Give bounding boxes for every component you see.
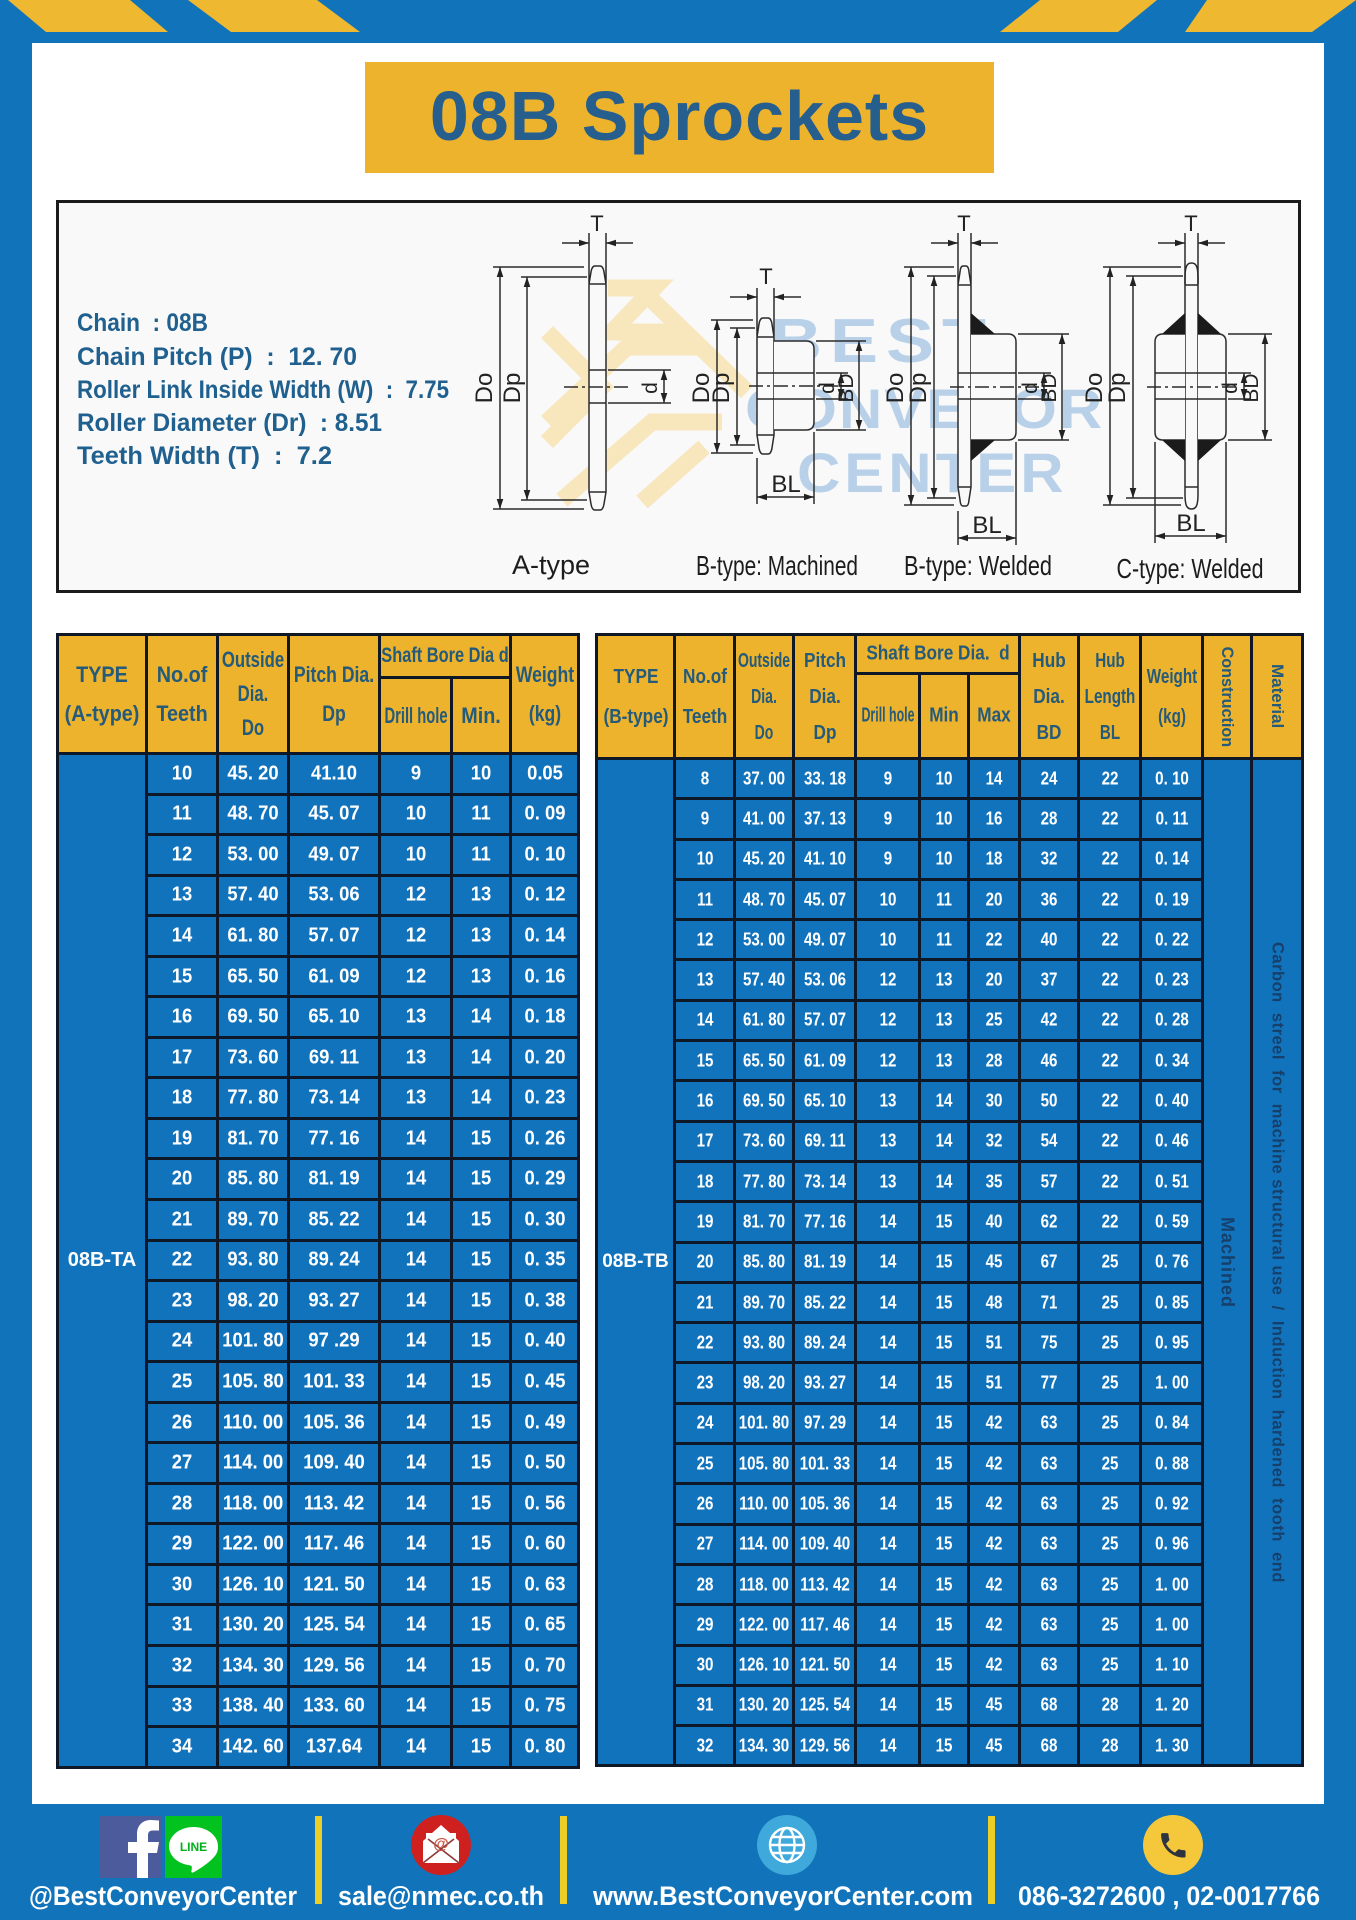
svg-text:Chain Pitch (P) : 12. 70: Chain Pitch (P) : 12. 70 — [77, 343, 357, 371]
svg-text:Chain : 08B: Chain : 08B — [77, 309, 208, 337]
svg-text:BD: BD — [835, 373, 858, 402]
svg-text:Dp: Dp — [499, 373, 526, 404]
svg-text:T: T — [590, 211, 603, 236]
svg-text:@BestConveyorCenter: @BestConveyorCenter — [29, 1881, 297, 1911]
svg-text:C-type: Welded: C-type: Welded — [1117, 553, 1264, 584]
svg-text:d: d — [1219, 382, 1242, 394]
svg-text:T: T — [957, 211, 970, 236]
svg-text:@: @ — [433, 1836, 449, 1853]
svg-text:Dp: Dp — [1104, 373, 1131, 404]
svg-text:BD: BD — [1038, 373, 1061, 402]
svg-text:086-3272600 , 02-0017766: 086-3272600 , 02-0017766 — [1018, 1881, 1320, 1911]
svg-text:Teeth Width (T) : 7.2: Teeth Width (T) : 7.2 — [77, 442, 332, 470]
svg-text:B-type: Machined: B-type: Machined — [696, 550, 858, 581]
svg-text:CENTER: CENTER — [797, 443, 1068, 504]
svg-text:BL: BL — [1176, 510, 1205, 537]
svg-text:Dp: Dp — [708, 373, 735, 404]
svg-text:T: T — [759, 264, 772, 289]
svg-text:LINE: LINE — [180, 1840, 207, 1854]
svg-text:Dp: Dp — [905, 373, 932, 404]
svg-text:T: T — [1184, 211, 1197, 236]
svg-text:sale@nmec.co.th: sale@nmec.co.th — [338, 1881, 544, 1911]
svg-text:BL: BL — [771, 471, 800, 498]
svg-text:www.BestConveyorCenter.com: www.BestConveyorCenter.com — [592, 1881, 973, 1911]
svg-text:Do: Do — [471, 373, 498, 404]
svg-text:Roller Link Inside Width (W): Roller Link Inside Width (W) : 7.75 — [77, 376, 449, 404]
svg-text:BL: BL — [972, 512, 1001, 539]
svg-text:BD: BD — [1240, 373, 1263, 402]
svg-text:Roller Diameter (Dr) : 8.51: Roller Diameter (Dr) : 8.51 — [77, 409, 382, 437]
svg-text:B-type: Welded: B-type: Welded — [904, 550, 1052, 581]
svg-text:A-type: A-type — [512, 550, 590, 580]
svg-text:d: d — [639, 382, 662, 394]
